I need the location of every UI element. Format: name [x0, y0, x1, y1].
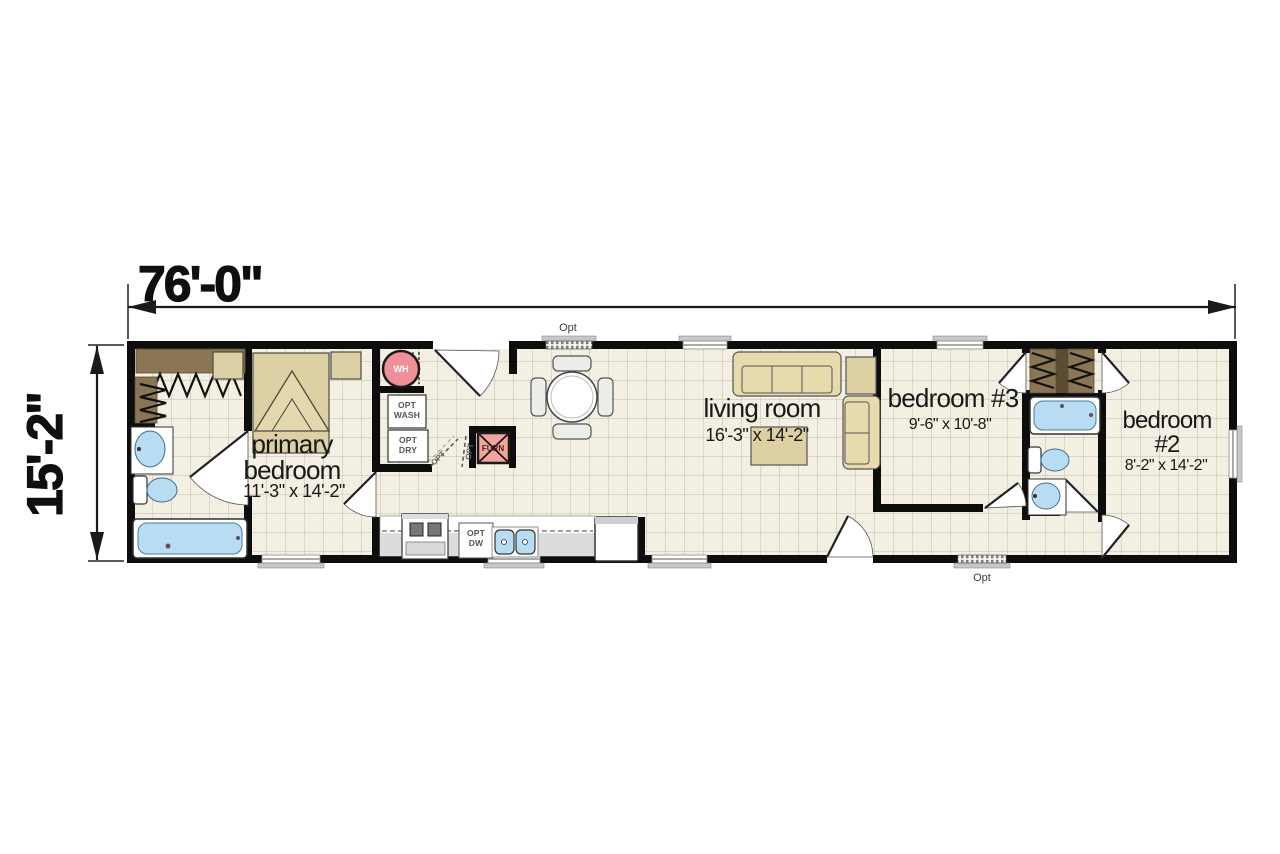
range-back — [402, 514, 448, 519]
wall-segment — [372, 341, 380, 472]
bathtub-basin — [1034, 401, 1096, 430]
drain-icon — [166, 544, 171, 549]
faucet-icon — [1089, 413, 1093, 417]
bedroom-2-size: 8'-2" x 14'-2" — [1125, 457, 1208, 474]
window-sill — [648, 563, 711, 568]
toilet-bowl — [147, 478, 177, 502]
wall-segment — [1098, 341, 1106, 353]
toilet-tank — [1028, 447, 1041, 473]
wall-segment — [509, 341, 517, 374]
drain-icon — [502, 540, 507, 545]
window-sill — [933, 336, 987, 341]
faucet-icon — [137, 447, 141, 451]
dining-chair — [553, 356, 591, 371]
nightstand — [331, 352, 361, 379]
arrowhead-right-icon — [1208, 300, 1236, 314]
washer-label: WASH — [394, 410, 420, 420]
bedroom-2-label: #2 — [1154, 431, 1180, 458]
dishwasher-label: DW — [469, 538, 484, 548]
wall-segment — [873, 504, 983, 512]
living-room-label: living room — [704, 393, 821, 423]
window-sill — [679, 336, 731, 341]
end-table — [846, 357, 876, 394]
wall-segment — [372, 464, 432, 472]
dishwasher-label: OPT — [467, 528, 486, 538]
dimension-width: 76'-0" — [128, 256, 1236, 339]
floor-plan-drawing: 76'-0" 15'-2" — [0, 0, 1280, 854]
dining-chair — [531, 378, 546, 416]
window-sill — [954, 563, 1010, 568]
bedroom-3-size: 9'-6" x 10'-8" — [909, 416, 992, 433]
dryer-label: OPT — [399, 435, 418, 445]
range-front — [406, 542, 445, 555]
window-sill — [258, 563, 324, 568]
closet-divider — [1056, 349, 1068, 393]
bedroom-2-label: bedroom — [1122, 407, 1211, 434]
wall-segment — [372, 517, 380, 563]
faucet-icon — [1033, 494, 1037, 498]
living-room-size: 16'-3" x 14'-2" — [705, 425, 808, 445]
door-opening — [433, 341, 509, 349]
height-dimension-label: 15'-2" — [17, 393, 73, 517]
burner-icon — [410, 523, 423, 536]
window-sill — [484, 563, 544, 568]
nightstand — [213, 352, 243, 379]
arrowhead-down-icon — [90, 532, 104, 560]
drain-icon — [523, 540, 528, 545]
toilet-bowl — [1041, 449, 1069, 471]
dimension-height: 15'-2" — [17, 345, 124, 561]
dryer-label: DRY — [399, 445, 417, 455]
drain-icon — [1060, 404, 1064, 408]
optional-window-label-bottom: Opt — [973, 572, 991, 584]
optional-window-label-top: Opt — [559, 322, 577, 334]
width-dimension-label: 76'-0" — [138, 256, 262, 312]
window-sill — [542, 336, 596, 341]
hall-closets — [1030, 349, 1094, 393]
floor-plan-page: 76'-0" 15'-2" — [0, 0, 1280, 854]
faucet-icon — [236, 536, 240, 540]
dining-table — [547, 372, 597, 422]
bedroom-3-label: bedroom #3 — [888, 383, 1019, 413]
wall-segment — [127, 341, 1237, 349]
bathtub-basin — [138, 523, 242, 554]
dining-chair — [553, 424, 591, 439]
furnace-label: FURN — [482, 444, 504, 453]
burner-icon — [428, 523, 441, 536]
primary-bedroom-size: 11'-3" x 14'-2" — [243, 481, 345, 501]
washer-label: OPT — [398, 400, 417, 410]
water-heater-label: WH — [394, 364, 409, 374]
window-sill — [1237, 426, 1242, 482]
toilet-tank — [133, 476, 147, 504]
refrigerator-top — [595, 517, 638, 524]
dining-chair — [598, 378, 613, 416]
arrowhead-up-icon — [90, 346, 104, 374]
sofa-seat — [742, 366, 832, 393]
kitchen: OPT DW — [380, 514, 638, 561]
wall-segment — [1022, 341, 1030, 353]
